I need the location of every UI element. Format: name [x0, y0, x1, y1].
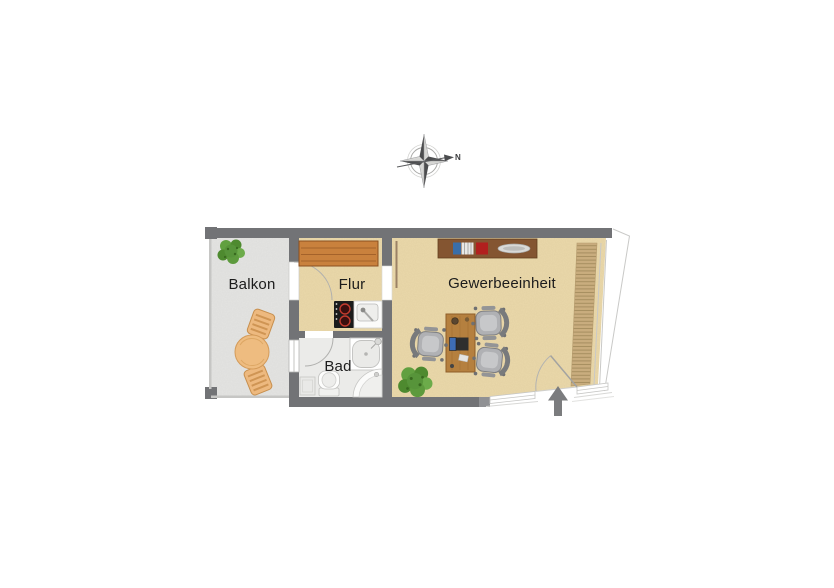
books-icon — [453, 243, 461, 255]
bath-window — [289, 340, 299, 372]
shower-icon — [350, 338, 382, 370]
balcony-railing-bottom — [211, 396, 289, 399]
desk-icon — [446, 314, 475, 372]
wall-endcap — [479, 397, 490, 407]
wall-balcony-3 — [289, 372, 299, 397]
cooktop-icon — [334, 301, 354, 328]
wall-bad-top-right — [333, 331, 382, 338]
bad-door-opening — [305, 331, 333, 338]
wall-balcony-1 — [289, 238, 299, 262]
gewerbe-doorway-opening — [382, 266, 392, 300]
room-label-flur: Flur — [339, 276, 366, 293]
wall-divider-stub — [382, 238, 392, 266]
compass-north-label: N — [455, 153, 461, 162]
floor-plan-canvas: N — [0, 0, 834, 588]
wall-top — [207, 228, 612, 238]
wall-bad-top-left — [299, 331, 305, 338]
books-icon — [462, 243, 474, 255]
sideboard-icon — [438, 239, 537, 258]
room-label-gewerbeeinheit: Gewerbeeinheit — [448, 275, 556, 292]
wall-balcony-2 — [289, 300, 299, 340]
books-icon — [476, 243, 488, 255]
balcony-door-opening — [289, 262, 299, 300]
wall-bottom — [289, 397, 490, 407]
bath-cabinet-icon — [300, 377, 315, 395]
compass-icon: N — [397, 134, 461, 188]
entrance-arrow-icon — [548, 386, 568, 416]
kitchen-sink-icon — [354, 301, 382, 328]
floorplan-page: N — [0, 0, 834, 588]
laptop-icon — [450, 338, 469, 351]
balcony-railing-left — [209, 239, 212, 389]
room-label-bad: Bad — [324, 358, 351, 375]
balcony-post-top — [205, 227, 217, 239]
room-label-balkon: Balkon — [228, 276, 275, 293]
wardrobe-icon — [299, 241, 378, 266]
bistro-table-icon — [235, 335, 269, 369]
wall-divider-lower — [382, 300, 392, 397]
